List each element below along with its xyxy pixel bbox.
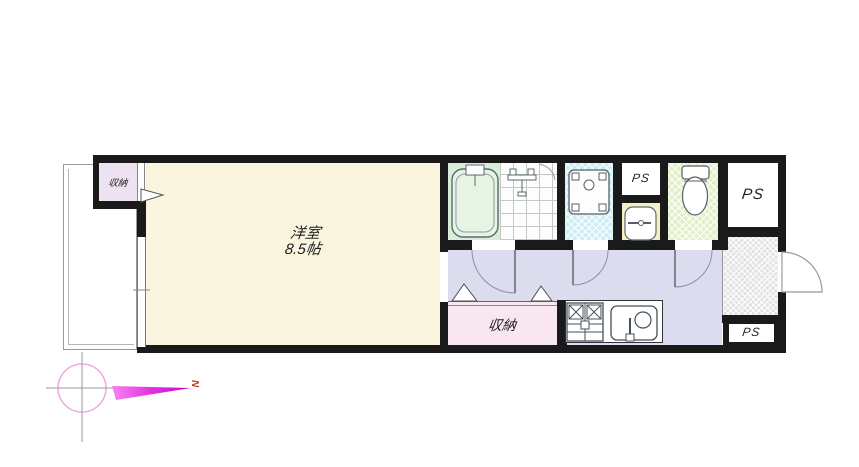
closet-bottom-label: 収納 — [446, 315, 559, 335]
gas-stove-icon — [567, 303, 603, 341]
north-label: N — [188, 380, 200, 392]
toilet-door-arc-icon — [675, 250, 712, 287]
main-room-name: 洋室 — [248, 226, 362, 242]
main-room-label: 洋室 8.5帖 — [246, 226, 362, 258]
washbasin-icon — [625, 207, 656, 240]
pipe-space-bottom-label: PS — [724, 325, 779, 339]
washer-door-arc-icon — [573, 250, 608, 285]
pipe-space-top-label: PS — [621, 171, 661, 185]
closet-top-door-swing-icon — [141, 189, 163, 202]
entry-door-swing-icon — [782, 252, 822, 292]
kitchen-sink-icon — [611, 306, 657, 341]
bathroom-door-arc-icon — [472, 250, 515, 293]
compass-north-arrow-icon — [46, 352, 191, 442]
shower-mixer-icon — [508, 169, 536, 196]
washing-machine-icon — [569, 170, 609, 214]
bifold-closet-door-icon — [452, 284, 552, 301]
main-room-size: 8.5帖 — [246, 242, 360, 258]
pipe-space-right-label: PS — [727, 186, 779, 203]
bath-corner-line — [539, 164, 555, 180]
closet-top-label: 収納 — [98, 175, 138, 189]
bathtub-icon — [452, 165, 498, 237]
toilet-icon — [682, 166, 709, 215]
floorplan-canvas: 収納 洋室 8.5帖 収納 PS PS PS N — [0, 0, 859, 467]
